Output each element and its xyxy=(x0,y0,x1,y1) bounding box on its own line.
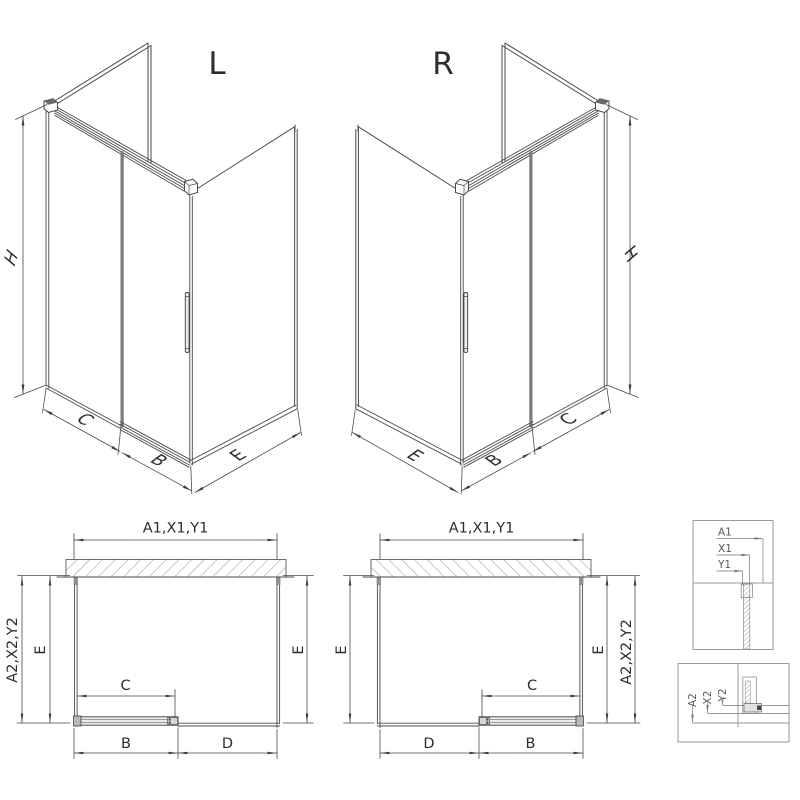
dim-label-opening-right-plan: C xyxy=(527,678,537,694)
dim-label-side-right-left-plan: E xyxy=(291,645,307,654)
width-codes-detail-box xyxy=(693,521,773,650)
dim-label-depth-codes-left-plan: A2,X2,Y2 xyxy=(5,617,21,683)
dim-label-height-left-3d: H xyxy=(1,245,21,271)
dim-label-width-codes-right-plan: A1,X1,Y1 xyxy=(449,521,515,537)
dim-label-fixed-left-plan: D xyxy=(222,736,233,752)
detail-width-row-x1: X1 xyxy=(718,543,732,555)
roller-section xyxy=(757,706,761,711)
dim-label-door-left-plan: B xyxy=(121,736,131,752)
left-variant-3d-view xyxy=(15,43,302,494)
glass-section-hatch xyxy=(745,681,750,703)
variant-label-right: R xyxy=(432,46,454,82)
drawing-svg: L R H C B E H E B C A1,X1,Y1 A2,X2,Y2 E … xyxy=(0,0,800,800)
detail-depth-row-x2: X2 xyxy=(702,691,714,705)
dim-label-door-right-plan: B xyxy=(526,736,536,752)
dim-label-side-inner-right-plan: E xyxy=(591,645,607,654)
dim-label-depth-codes-right-plan: A2,X2,Y2 xyxy=(619,619,635,685)
left-variant-plan-view xyxy=(17,534,314,759)
dim-label-side-left-right-plan: E xyxy=(334,645,350,654)
detail-depth-row-a2: A2 xyxy=(687,693,699,707)
glass-section-hatch xyxy=(744,584,750,649)
dim-label-opening-left-plan: C xyxy=(120,678,130,694)
dim-label-side-inner-left-plan: E xyxy=(33,645,49,654)
variant-label-left: L xyxy=(208,46,226,82)
dim-label-width-codes-left-plan: A1,X1,Y1 xyxy=(143,521,209,537)
right-variant-3d-view xyxy=(352,43,639,494)
detail-width-row-a1: A1 xyxy=(718,527,732,539)
labels-layer: L R H C B E H E B C A1,X1,Y1 A2,X2,Y2 E … xyxy=(1,46,731,752)
dim-label-fixed-right-plan: D xyxy=(423,736,434,752)
detail-width-row-y1: Y1 xyxy=(717,559,731,571)
detail-depth-row-y2: Y2 xyxy=(717,688,729,702)
shower-enclosure-technical-drawing: L R H C B E H E B C A1,X1,Y1 A2,X2,Y2 E … xyxy=(0,0,800,800)
